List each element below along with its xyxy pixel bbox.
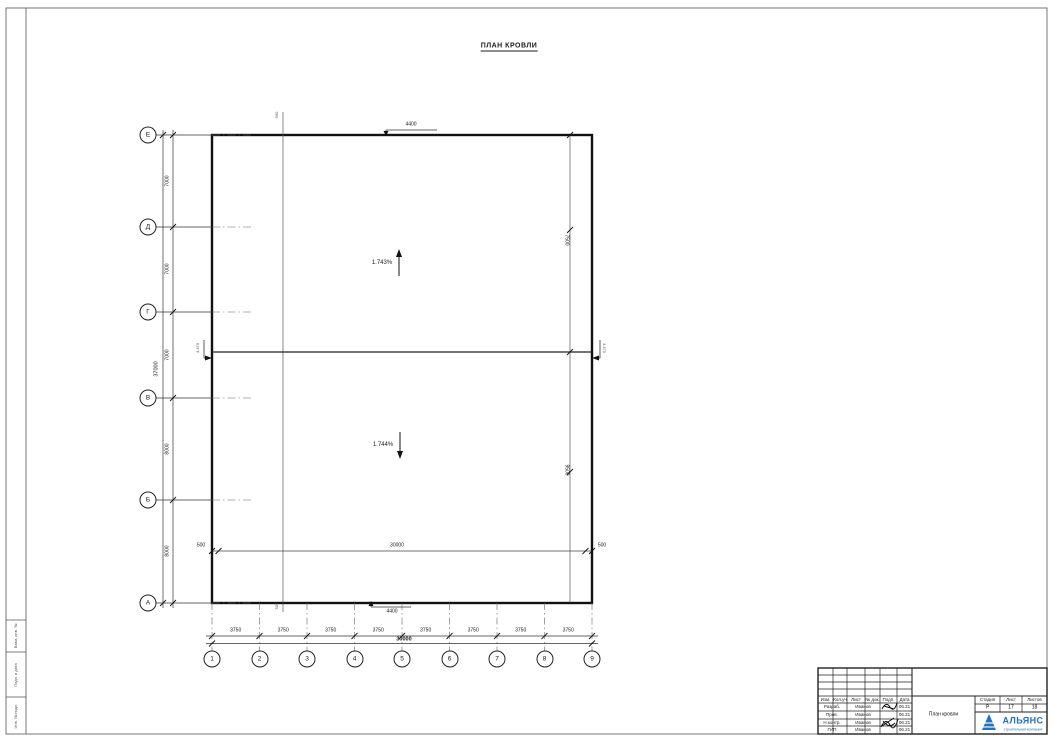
dim-inner-left: 500 [197, 544, 205, 549]
dim-right-upper: 7500 [564, 234, 569, 245]
axis-col-label: 2 [258, 656, 262, 663]
dim-top-offset: 500 [275, 112, 279, 119]
axis-col-label: 6 [448, 656, 452, 663]
axis-row-label: Д [146, 224, 150, 231]
axis-col-label: 4 [353, 656, 357, 663]
dim-col-segment: 3750 [278, 628, 289, 633]
axis-row-bubble-d: Д [140, 219, 157, 236]
elevation-right-label: 4.470 [602, 343, 606, 353]
signature-scribbles [881, 703, 898, 728]
dim-right-lower: 9500 [564, 464, 569, 475]
dim-inner-right: 500 [598, 544, 606, 549]
titleblock-date: 06.21 [899, 720, 910, 725]
dim-bottom-offset: 500 [275, 603, 279, 610]
titleblock-role: Разраб. [824, 705, 840, 710]
axis-row-bubble-v: В [140, 390, 157, 407]
dim-row-segment: 8000 [166, 545, 171, 556]
dim-col-segment: 3750 [373, 628, 384, 633]
axis-col-bubble-3: 3 [299, 651, 316, 668]
dim-row-segment: 7000 [166, 263, 171, 274]
axis-col-label: 1 [210, 656, 214, 663]
left-dimension-chain [156, 130, 252, 608]
slope-arrow-down [397, 432, 403, 459]
axis-row-bubble-g: Г [140, 304, 157, 321]
axis-col-bubble-4: 4 [346, 651, 363, 668]
dim-col-segment: 3750 [325, 628, 336, 633]
axis-row-bubble-e: Е [140, 127, 157, 144]
titleblock-date: 06.21 [899, 705, 910, 710]
titleblock-name: Иванов [855, 705, 870, 710]
dim-col-segment: 3750 [515, 628, 526, 633]
elevation-leader-right [592, 340, 600, 361]
dim-col-segment: 3750 [230, 628, 241, 633]
stage-header-list: Лист [1006, 698, 1016, 703]
axis-col-label: 3 [305, 656, 309, 663]
sheet-frame [6, 8, 1047, 734]
titleblock-header-dok: № док. [865, 697, 879, 702]
elevation-left-label: 4.470 [196, 343, 200, 353]
titleblock-header-kol: Кол.уч [833, 697, 847, 702]
axis-col-label: 9 [590, 656, 594, 663]
axis-col-label: 8 [543, 656, 547, 663]
titleblock-header-podp: Подп. [883, 697, 895, 702]
company-subtitle: строительная компания [1004, 728, 1043, 732]
titleblock-role: ГИП [828, 728, 837, 733]
dim-row-segment: 7000 [166, 349, 171, 360]
bottom-dimension-chain [206, 603, 598, 651]
axis-row-label: Е [146, 132, 150, 139]
drawing-title: ПЛАН КРОВЛИ [481, 43, 538, 52]
titleblock-role: Н.контр. [823, 720, 840, 725]
dim-col-segment: 3750 [468, 628, 479, 633]
company-name: АЛЬЯНС [1003, 717, 1044, 726]
side-stamp-podp: Подп. и дата [14, 663, 18, 687]
slope-down-label: 1.744% [373, 442, 393, 448]
stage-value-list: 17 [1008, 706, 1014, 711]
company-logo-icon [982, 714, 996, 730]
side-stamp-inv: Инв. № подл. [14, 703, 18, 728]
titleblock-header-data: Дата [900, 697, 910, 702]
side-stamp-vzam: Взам. инв. № [14, 624, 18, 649]
titleblock-header-izm: Изм. [821, 697, 831, 702]
titleblock-date: 06.21 [899, 713, 910, 718]
axis-row-bubble-a: А [140, 595, 157, 612]
axis-row-bubble-b: Б [140, 492, 157, 509]
slope-up-label: 1.743% [372, 260, 392, 266]
dim-top-leader: 4400 [405, 123, 416, 128]
titleblock-name: Иванов [855, 720, 870, 725]
stage-value-stadia: Р [986, 706, 989, 711]
titleblock-date: 06.21 [899, 728, 910, 733]
roof-outline [212, 112, 592, 612]
titleblock-name: Иванов [855, 713, 870, 718]
axis-col-bubble-6: 6 [441, 651, 458, 668]
axis-row-label: Г [146, 309, 150, 316]
axis-col-bubble-2: 2 [251, 651, 268, 668]
axis-col-bubble-9: 9 [584, 651, 601, 668]
stage-header-stadia: Стадия [980, 698, 995, 703]
dim-inner-center: 30000 [390, 544, 404, 549]
dim-row-segment: 8000 [166, 443, 171, 454]
titleblock-name: Иванов [855, 728, 870, 733]
axis-col-bubble-7: 7 [489, 651, 506, 668]
dim-col-segment: 3750 [563, 628, 574, 633]
dim-row-segment: 7000 [166, 175, 171, 186]
titleblock-header-list: Лист [851, 697, 861, 702]
axis-col-bubble-1: 1 [204, 651, 221, 668]
stage-header-listov: Листов [1027, 698, 1042, 703]
axis-col-bubble-8: 8 [536, 651, 553, 668]
axis-row-label: В [146, 395, 150, 402]
axis-col-bubble-5: 5 [394, 651, 411, 668]
dim-col-total: 30000 [396, 637, 411, 643]
titleblock-doc-name: План кровли [929, 713, 958, 718]
axis-col-label: 7 [495, 656, 499, 663]
drawing-sheet: ПЛАН КРОВЛИ Е Д Г В Б А 1 2 3 4 5 6 7 8 … [0, 0, 1053, 740]
axis-row-label: Б [146, 497, 150, 504]
stage-value-listov: 18 [1032, 706, 1038, 711]
dim-col-segment: 3750 [420, 628, 431, 633]
axis-col-label: 5 [400, 656, 404, 663]
titleblock-role: Пров. [826, 713, 838, 718]
slope-arrow-up [396, 249, 402, 276]
axis-row-label: А [146, 600, 150, 607]
dim-row-total: 37000 [154, 361, 160, 376]
dim-bottom-leader: 4400 [386, 609, 397, 614]
